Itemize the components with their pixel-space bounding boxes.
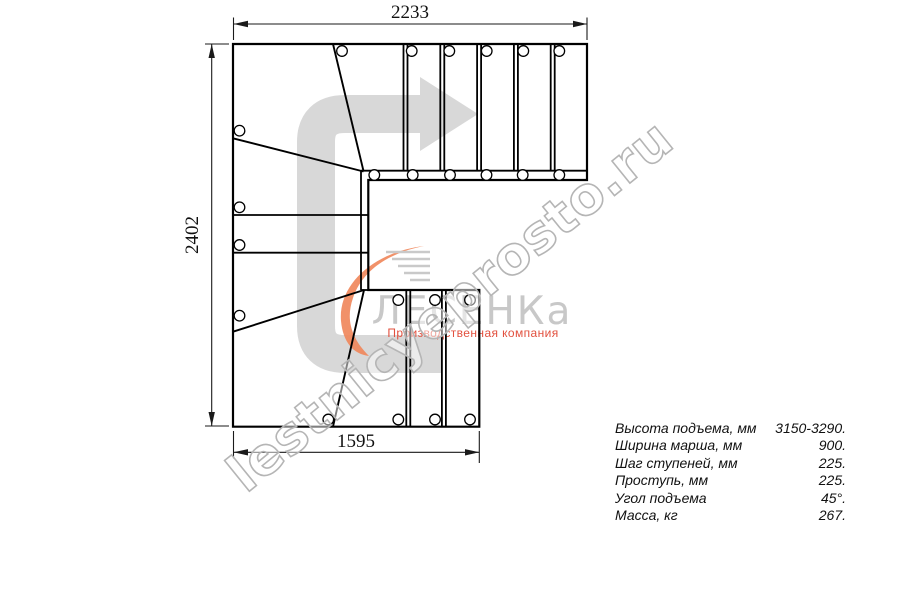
screw-hole [406, 46, 417, 57]
spec-row-tread: Проступь, мм 225. [615, 472, 846, 489]
screw-hole [234, 240, 245, 251]
screw-hole [554, 46, 565, 57]
spec-value: 900. [819, 437, 846, 454]
dim-arrow [209, 412, 215, 426]
screw-hole [393, 414, 404, 425]
dim-arrow [234, 21, 249, 27]
screw-hole [465, 414, 476, 425]
spec-row-mass: Масса, кг 267. [615, 507, 846, 524]
dim-arrow [465, 449, 479, 455]
spec-value: 267. [819, 507, 846, 524]
spec-label: Проступь, мм [615, 472, 708, 489]
stair-drawing-page: ЛЕСЕНКа Производственная компания [0, 0, 900, 600]
screw-hole [445, 170, 456, 181]
screw-hole [407, 170, 418, 181]
screw-hole [481, 46, 492, 57]
screw-hole [393, 295, 404, 306]
direction-arrow-head [420, 77, 478, 151]
dim-arrow [573, 21, 587, 27]
screw-hole [337, 46, 348, 57]
spec-label: Шаг ступеней, мм [615, 455, 738, 472]
spec-label: Высота подъема, мм [615, 420, 757, 437]
spec-value: 225. [819, 472, 846, 489]
dim-label-top: 2233 [391, 2, 429, 23]
spec-label: Угол подъема [615, 490, 707, 507]
spec-value: 3150-3290. [775, 420, 846, 437]
spec-row-step-pitch: Шаг ступеней, мм 225. [615, 455, 846, 472]
spec-list: Высота подъема, мм 3150-3290. Ширина мар… [615, 420, 846, 524]
screw-hole [234, 202, 245, 213]
spec-row-angle: Угол подъема 45°. [615, 490, 846, 507]
spec-row-height: Высота подъема, мм 3150-3290. [615, 420, 846, 437]
spec-row-flight-width: Ширина марша, мм 900. [615, 437, 846, 454]
screw-hole [234, 310, 245, 321]
screw-hole [444, 46, 455, 57]
spec-value: 225. [819, 455, 846, 472]
spec-label: Ширина марша, мм [615, 437, 742, 454]
screw-hole [430, 414, 441, 425]
dim-label-left: 2402 [182, 216, 203, 254]
screw-hole [481, 170, 492, 181]
spec-value: 45°. [821, 490, 846, 507]
screw-hole [234, 125, 245, 136]
dim-arrow [209, 44, 215, 58]
spec-label: Масса, кг [615, 507, 678, 524]
logo-stairs-icon [386, 252, 430, 280]
screw-hole [517, 170, 528, 181]
dimension-left [205, 44, 229, 426]
screw-hole [369, 170, 380, 181]
dim-label-bottom: 1595 [337, 431, 375, 452]
screw-hole [518, 46, 529, 57]
